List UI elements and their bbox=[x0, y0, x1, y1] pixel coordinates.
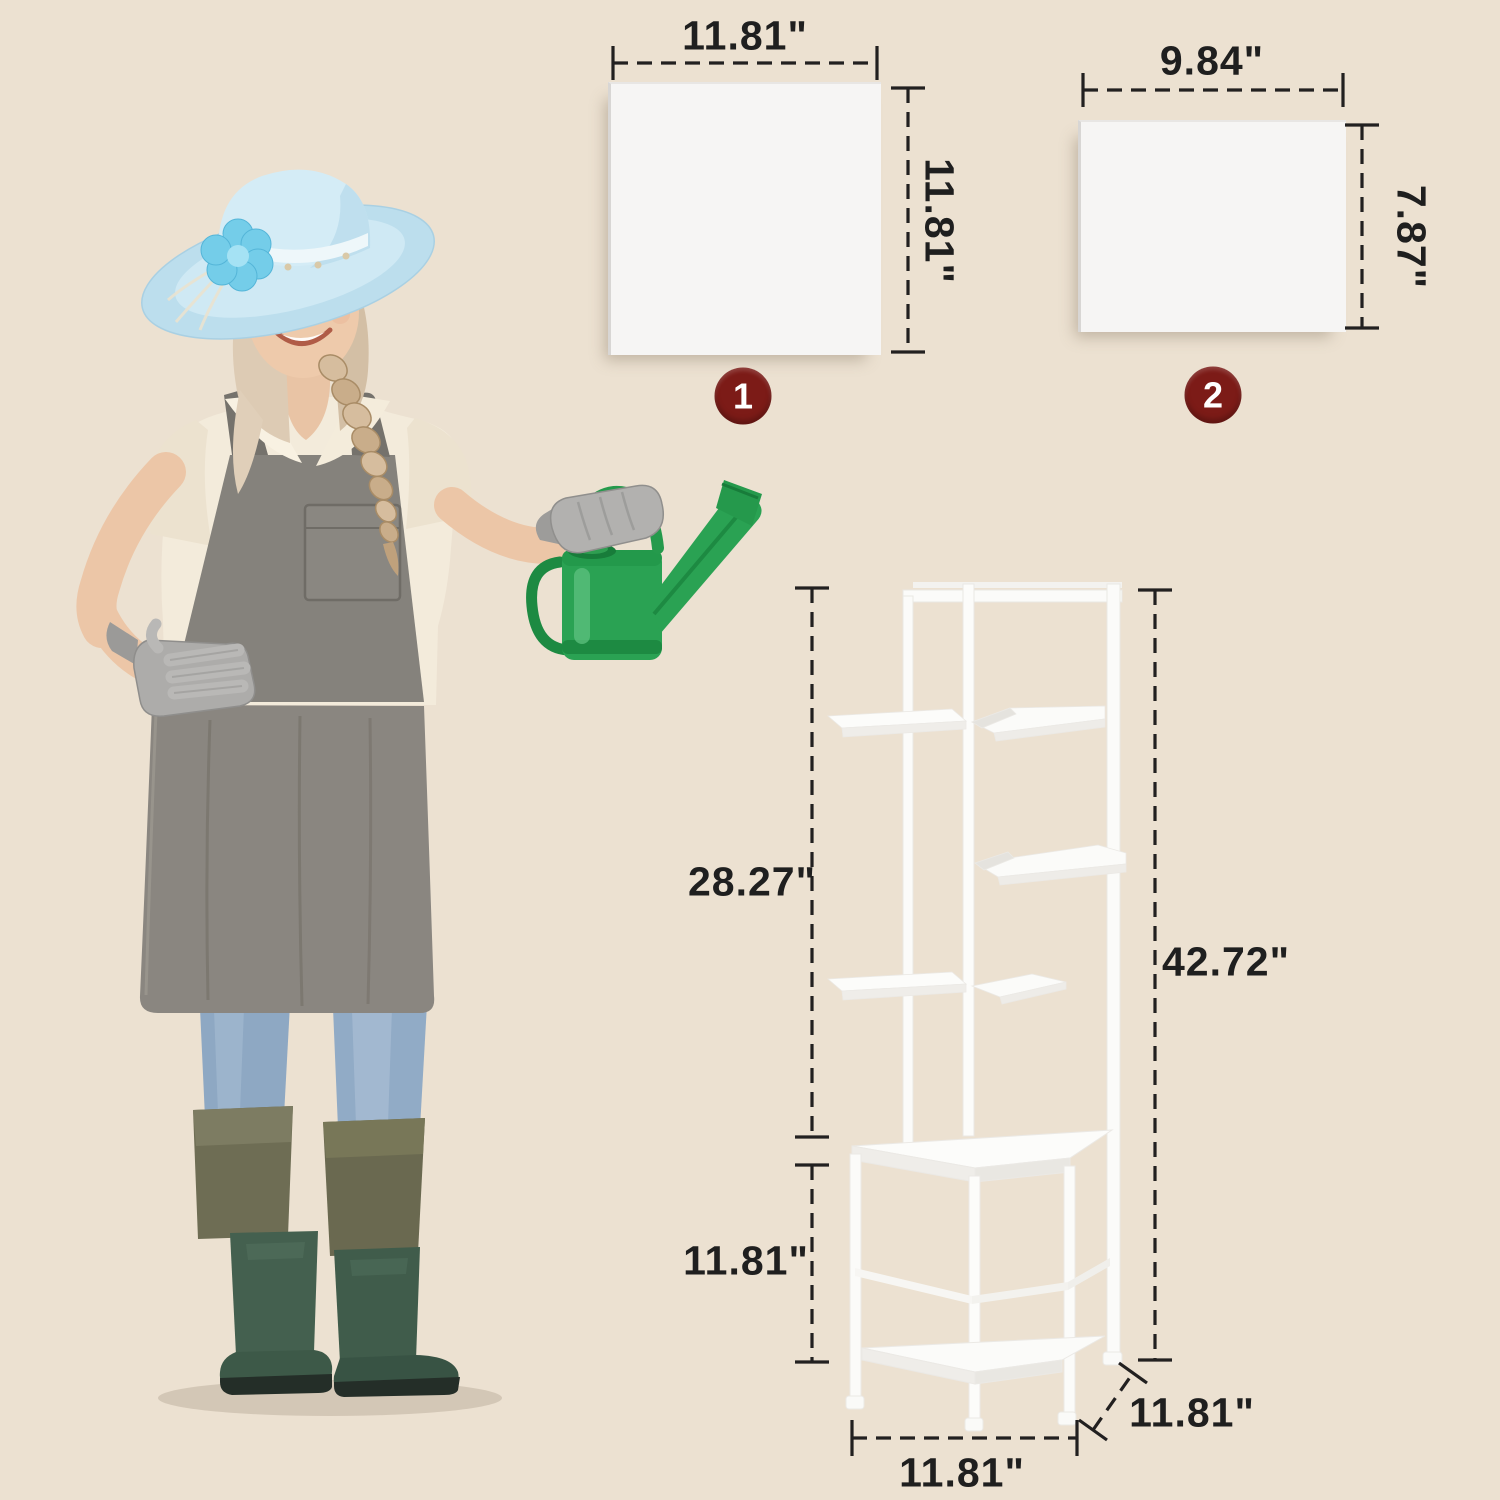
panel1-height-label: 11.81" bbox=[919, 158, 960, 284]
stand-base-depth-label: 11.81" bbox=[1129, 1393, 1255, 1434]
panel2-number-badge: 2 bbox=[1185, 367, 1242, 424]
stand-total-height-label: 42.72" bbox=[1162, 942, 1290, 983]
product-dimension-sheet: 11.81" 11.81" 9.84" 7.87" 28.27" 11.81" … bbox=[0, 0, 1500, 1500]
panel2-height-label: 7.87" bbox=[1391, 185, 1432, 289]
panel1-width-label: 11.81" bbox=[682, 16, 808, 57]
stand-upper-height-label: 28.27" bbox=[688, 862, 816, 903]
stand-lower-height-label: 11.81" bbox=[683, 1241, 809, 1282]
panel2-width-label: 9.84" bbox=[1160, 41, 1264, 82]
stand-base-width-label: 11.81" bbox=[899, 1453, 1025, 1494]
panel1-number-badge: 1 bbox=[715, 368, 772, 425]
